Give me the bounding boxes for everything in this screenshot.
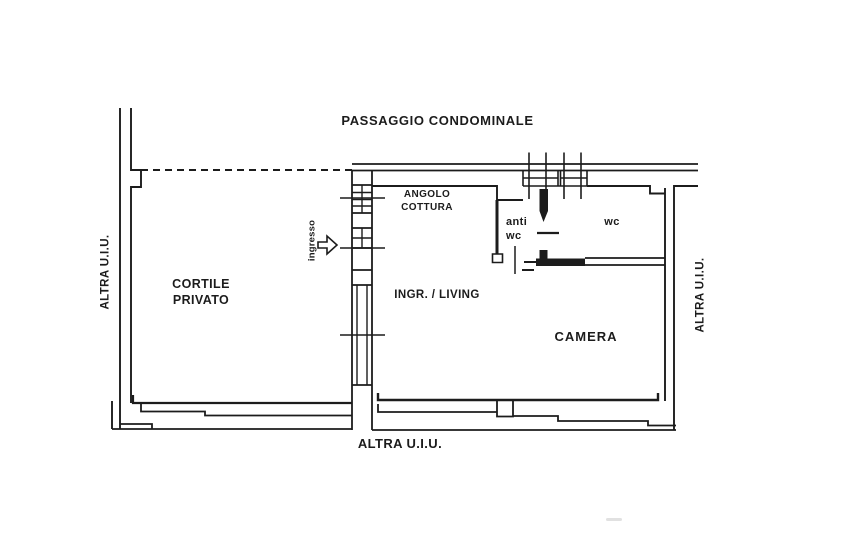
camera-door-leaf xyxy=(536,250,585,266)
right-boundary-wall xyxy=(665,185,674,430)
label-cortile-line1: CORTILE xyxy=(160,276,242,292)
anti-wc-partition xyxy=(493,200,503,263)
label-cortile-line2: PRIVATO xyxy=(160,292,242,308)
anti-wc-door-leaf xyxy=(540,189,549,222)
label-anti-line2: wc xyxy=(506,229,536,243)
label-altra-uiu-bottom: ALTRA U.I.U. xyxy=(350,436,450,451)
scan-artifact xyxy=(606,518,622,521)
bottom-wall-right xyxy=(372,393,676,430)
label-angolo-line1: ANGOLO xyxy=(394,188,460,201)
label-ingresso: ingresso xyxy=(307,196,318,286)
label-altra-uiu-right: ALTRA U.I.U. xyxy=(695,247,707,344)
floor-plan-page: PASSAGGIO CONDOMINALE ALTRA U.I.U. ALTRA… xyxy=(0,0,853,560)
label-ingr-living: INGR. / LIVING xyxy=(387,289,487,301)
floor-plan-drawing xyxy=(0,0,853,560)
wc-camera-wall xyxy=(585,258,665,265)
entrance-wall-column xyxy=(340,170,385,430)
label-wc: wc xyxy=(597,216,627,228)
entrance-arrow-icon xyxy=(318,236,337,254)
bottom-wall-left xyxy=(112,395,352,429)
label-cortile-privato: CORTILE PRIVATO xyxy=(160,276,242,308)
label-camera: CAMERA xyxy=(545,329,627,344)
label-angolo-line2: COTTURA xyxy=(394,201,460,214)
label-angolo-cottura: ANGOLO COTTURA xyxy=(394,188,460,214)
camera-door-jamb xyxy=(515,246,536,274)
label-altra-uiu-left: ALTRA U.I.U. xyxy=(100,225,112,320)
flue-vent-grid xyxy=(523,153,587,200)
top-strip-wall xyxy=(352,164,698,171)
label-passaggio-condominale: PASSAGGIO CONDOMINALE xyxy=(340,113,535,128)
label-anti-wc: anti wc xyxy=(506,215,536,243)
left-boundary-wall xyxy=(112,108,141,429)
label-anti-line1: anti xyxy=(506,215,536,229)
